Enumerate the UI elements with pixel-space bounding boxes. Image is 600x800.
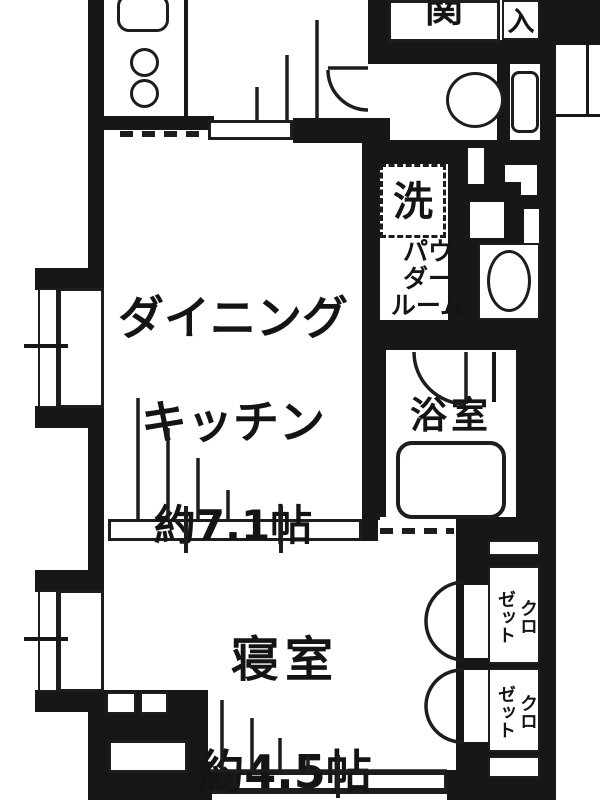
wall-segment	[35, 570, 104, 592]
wall-segment	[380, 40, 540, 64]
toilet-tank	[511, 71, 539, 133]
kitchen-doorway-sill	[208, 120, 293, 140]
bathroom-shelf-line	[492, 352, 496, 402]
entrance-label: 関	[391, 0, 497, 30]
powder-room-label: パウ ダー ルーム	[378, 238, 478, 319]
wall-segment	[88, 712, 104, 800]
utility-slot	[470, 202, 504, 238]
utility-slot	[468, 148, 484, 184]
wall-segment	[386, 340, 516, 350]
closet-upper-box: クロ ゼット	[488, 566, 540, 664]
window-tick	[24, 637, 68, 641]
storage-label-box: 入	[502, 0, 540, 40]
dining-kitchen-line2: キッチン	[98, 396, 368, 448]
wall-segment	[35, 268, 104, 290]
stove-burner	[130, 48, 159, 77]
closet-lower-label: クロ ゼット	[494, 672, 538, 752]
wall-segment	[35, 690, 104, 712]
storage-label: 入	[504, 8, 538, 37]
closet-bottom-slot	[488, 756, 540, 778]
dining-kitchen-label: ダイニング キッチン 約7.1帖	[98, 240, 368, 604]
window-tick	[24, 344, 68, 348]
entrance-door-arc	[328, 70, 368, 110]
closet-door-post	[464, 585, 488, 658]
toilet-bowl	[446, 72, 504, 128]
bathtub	[396, 441, 506, 519]
entrance-label-box: 関	[388, 0, 500, 42]
dining-kitchen-line1: ダイニング	[98, 292, 368, 344]
washing-machine-box: 洗	[380, 164, 446, 238]
window-outer-pane	[38, 288, 58, 408]
wall-segment	[540, 0, 600, 45]
washing-machine-label: 洗	[383, 181, 443, 224]
stove-burner	[130, 79, 159, 108]
window-inner-pane	[58, 590, 104, 692]
wall-segment	[378, 350, 386, 517]
closet-lower-box: クロ ゼット	[488, 668, 540, 752]
closet-top-slot	[488, 540, 540, 556]
kitchen-sink	[117, 0, 169, 32]
wall-segment	[88, 0, 104, 272]
closet-upper-label: クロ ゼット	[494, 571, 538, 663]
bedroom-size: 約4.5帖	[120, 744, 450, 800]
bedroom-name: 寝室	[120, 632, 450, 688]
wall-segment	[516, 340, 540, 517]
dining-kitchen-size: 約7.1帖	[98, 500, 368, 552]
floor-plan: 関 入 洗 パウ ダー ルーム 浴室 クロ ゼット クロ ゼット	[0, 0, 600, 800]
exterior-line	[556, 114, 600, 117]
bathroom-label: 浴室	[386, 396, 516, 436]
closet-door-post	[464, 670, 488, 742]
wall-segment	[505, 182, 521, 195]
counter-edge-line	[184, 0, 188, 118]
bedroom-label: 寝室 約4.5帖	[120, 576, 450, 800]
wall-segment	[88, 116, 214, 130]
wash-basin	[487, 250, 531, 312]
exterior-line	[586, 45, 589, 117]
window-outer-pane	[38, 590, 58, 692]
wall-segment	[35, 406, 104, 428]
